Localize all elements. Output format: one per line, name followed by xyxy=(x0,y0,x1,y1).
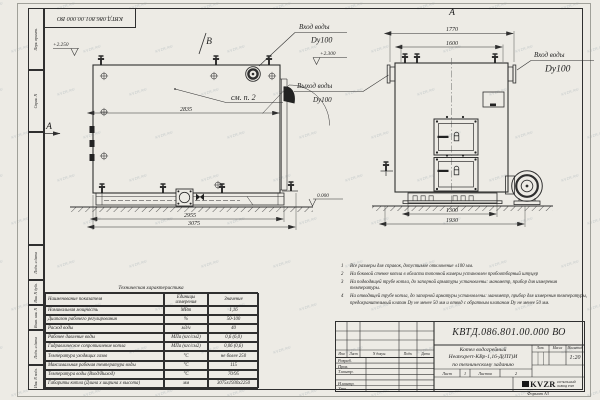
position-mark-icon xyxy=(100,72,108,80)
note-text: На боковой стенке котла в области топочн… xyxy=(350,272,538,278)
air-valve-icon xyxy=(98,55,104,65)
table-cell-value: 70/95 xyxy=(208,370,259,379)
tech-table-grid: Наименование показателяЕдиницы измерения… xyxy=(44,292,258,389)
drain-valve-icon xyxy=(160,183,166,193)
table-cell-value: 0,6 (6,0) xyxy=(208,333,259,342)
notes-list: 1Все размеры для справок, допустимое отк… xyxy=(341,264,588,309)
sign-row-label: Пров. xyxy=(338,364,348,369)
position-mark-icon xyxy=(100,108,108,116)
mass-label: Масса xyxy=(549,346,566,350)
outlet-flange-icon xyxy=(387,65,395,83)
sign-row-label: Н.контр. xyxy=(338,381,355,386)
scale-value: 1:20 xyxy=(566,355,584,361)
side-inlet-label: Вход воды xyxy=(534,51,565,59)
table-cell-name: Температура уходящих газов xyxy=(45,351,164,360)
hinge-lug-icon xyxy=(90,126,95,133)
table-cell-unit: м3/ч xyxy=(164,324,208,333)
front-inlet-label: Вход воды xyxy=(299,23,330,31)
ground-line xyxy=(372,206,553,211)
drawing-sheet: KVZR.RUKVZR.RUKVZR.RUKVZR.RUKVZR.RUKVZR.… xyxy=(0,0,600,400)
see-note-label: см. п. 2 xyxy=(231,93,256,102)
table-cell-value: 1,16 xyxy=(208,306,259,315)
table-cell-value: 115 xyxy=(208,361,259,370)
dim-2835: 2835 xyxy=(180,107,192,113)
side-drain-valve xyxy=(381,171,394,176)
fan-icon xyxy=(506,171,543,205)
table-cell-unit: МВт xyxy=(164,306,208,315)
hinge-lug-icon xyxy=(90,154,95,161)
dim-2955: 2955 xyxy=(184,213,196,219)
table-cell-unit: МПа (кгс/см2) xyxy=(164,342,208,351)
bottom-flange-icon xyxy=(176,189,193,206)
note-item: 1Все размеры для справок, допустимое отк… xyxy=(341,264,588,270)
note-text: На отводящей трубе котла, до запорной ар… xyxy=(350,294,588,307)
table-cell-value: 3075х1930х2250 xyxy=(208,379,259,388)
outlet-label: Выход воды xyxy=(297,82,333,90)
table-cell-unit: МПа (кгс/см2) xyxy=(164,333,208,342)
logo-subtext-line2: ЗАВОД РЭП xyxy=(557,384,576,388)
note-number: 2 xyxy=(341,272,350,278)
table-cell-unit: °С xyxy=(164,370,208,379)
note-number: 3 xyxy=(341,280,350,293)
sheets-label: Листов xyxy=(470,371,500,376)
marker-b: В xyxy=(206,37,212,47)
sheet-value: 1 xyxy=(460,371,470,376)
side-inlet-dn: Dy100 xyxy=(544,65,571,75)
dim-3075: 3075 xyxy=(187,221,200,227)
front-inlet-dn: Dy100 xyxy=(310,36,332,45)
air-valve-icon xyxy=(414,53,420,63)
table-cell-unit: % xyxy=(164,315,208,324)
table-cell-name: Габариты котла (Длина х ширина х высота) xyxy=(45,379,164,388)
drain-valve-icon xyxy=(99,183,105,193)
product-title-line1: Котел водогрейный xyxy=(434,347,532,353)
dim-1770: 1770 xyxy=(446,27,458,33)
sheet-label: Лист xyxy=(434,371,460,376)
side-dimensions xyxy=(294,31,594,227)
product-title-line3: по техническому заданию xyxy=(434,362,532,368)
table-cell-unit: мм xyxy=(164,379,208,388)
water-inlet-flange-icon xyxy=(246,67,261,82)
drain-valve-icon xyxy=(196,194,204,201)
revision-header: N докум. xyxy=(365,352,395,356)
table-cell-value: 50-100 xyxy=(208,315,259,324)
dim-1600: 1600 xyxy=(446,41,458,47)
title-block: КВТД.086.801.00.000 ВО Котел водогрейный… xyxy=(335,321,585,392)
side-view xyxy=(372,53,553,211)
sign-row-label: Т.контр. xyxy=(338,369,354,374)
table-cell-value: 40 xyxy=(208,324,259,333)
note-text: На подводящей трубе котла, до запорной а… xyxy=(350,280,588,293)
table-cell-value: не более 250 xyxy=(208,351,259,360)
tech-table: Техническая характеристика Наименование … xyxy=(44,285,258,389)
table-cell-name: Рабочее давление воды xyxy=(45,333,164,342)
table-header-cell: Значение xyxy=(208,293,259,306)
note-item: 2На боковой стенке котла в области топоч… xyxy=(341,272,588,278)
note-number: 4 xyxy=(341,294,350,307)
table-header-cell: Наименование показателя xyxy=(45,293,164,306)
logo-mark-icon xyxy=(522,381,529,388)
position-mark-icon xyxy=(268,72,276,80)
table-cell-name: Гидравлическое сопротивление котла xyxy=(45,342,164,351)
lower-door xyxy=(434,154,478,191)
control-box-icon xyxy=(483,92,504,107)
air-valve-icon xyxy=(213,55,219,65)
table-cell-name: Номинальная мощность xyxy=(45,306,164,315)
upper-door xyxy=(434,116,478,155)
lit-label: Лит. xyxy=(532,346,549,350)
table-cell-value: 0,06 (0,6) xyxy=(208,342,259,351)
sign-row-label: Утв. xyxy=(338,386,347,391)
position-mark-icon xyxy=(210,72,218,80)
note-item: 3На подводящей трубе котла, до запорной … xyxy=(341,280,588,293)
outlet-dn: Dy100 xyxy=(312,96,332,104)
ground-line xyxy=(70,207,313,212)
sign-row-label: Разраб. xyxy=(338,358,352,363)
table-cell-name: Температура воды (Вход/Выход) xyxy=(45,370,164,379)
elev-2250: +2.250 xyxy=(53,42,69,48)
product-title-line2: Heatexpert-КВр-1,16-Д(ПТ)И xyxy=(434,354,532,360)
revision-header: Дата xyxy=(411,352,441,356)
sheets-value: 2 xyxy=(500,371,532,376)
hinge-lug-icon xyxy=(90,140,95,147)
table-cell-unit: °С xyxy=(164,361,208,370)
note-number: 1 xyxy=(341,264,350,270)
drain-valve-icon xyxy=(383,161,389,171)
table-cell-name: Расход воды xyxy=(45,324,164,333)
dim-1930: 1930 xyxy=(446,218,458,224)
air-valve-icon xyxy=(492,53,498,63)
logo-subtext: КОТЕЛЬНЫЙ ЗАВОД РЭП xyxy=(557,380,576,388)
format-note: Формат А3 xyxy=(498,391,578,396)
side-skid xyxy=(403,193,502,204)
scale-label: Масштаб xyxy=(566,346,584,350)
table-cell-name: Максимальная рабочая температура воды xyxy=(45,361,164,370)
elev-2300: +2.300 xyxy=(320,51,336,57)
tech-table-title: Техническая характеристика xyxy=(44,285,258,291)
marker-a: А xyxy=(45,122,52,132)
doc-number: КВТД.086.801.00.000 ВО xyxy=(434,327,584,338)
air-valve-icon xyxy=(402,53,408,63)
logo-text: KVZR xyxy=(530,379,555,389)
inlet-flange-icon xyxy=(508,65,516,83)
position-mark-icon xyxy=(100,152,108,160)
manufacturer-logo: KVZR КОТЕЛЬНЫЙ ЗАВОД РЭП xyxy=(515,379,583,390)
table-cell-name: Диапазон рабочего регулирования xyxy=(45,315,164,324)
dim-1300: 1300 xyxy=(446,208,458,214)
front-view xyxy=(70,55,330,212)
note-item: 4На отводящей трубе котла, до запорной а… xyxy=(341,294,588,307)
elev-0000: 0.000 xyxy=(317,193,329,199)
drain-valve-icon xyxy=(288,181,294,191)
table-header-cell: Единицы измерения xyxy=(164,293,208,306)
table-cell-unit: °С xyxy=(164,351,208,360)
note-text: Все размеры для справок, допустимое откл… xyxy=(350,264,473,270)
side-view-marker: А xyxy=(448,8,455,18)
